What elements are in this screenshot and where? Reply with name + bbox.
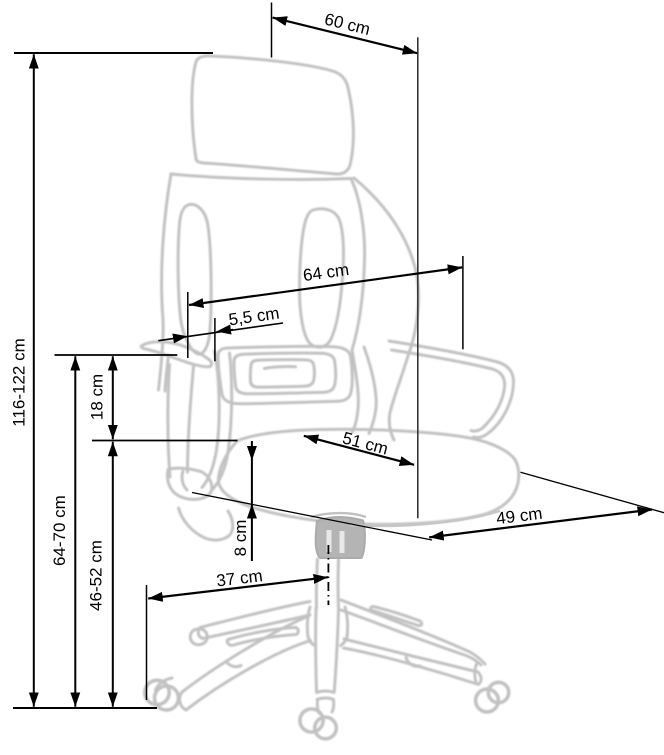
svg-text:64-70 cm: 64-70 cm [50,495,69,566]
svg-text:5,5 cm: 5,5 cm [227,304,280,330]
svg-text:18 cm: 18 cm [88,374,107,420]
svg-text:51 cm: 51 cm [340,428,390,458]
svg-text:8 cm: 8 cm [231,520,250,557]
svg-text:37 cm: 37 cm [215,566,263,590]
svg-text:60 cm: 60 cm [323,10,373,40]
svg-text:116-122 cm: 116-122 cm [9,338,28,427]
svg-text:46-52 cm: 46-52 cm [87,540,106,611]
